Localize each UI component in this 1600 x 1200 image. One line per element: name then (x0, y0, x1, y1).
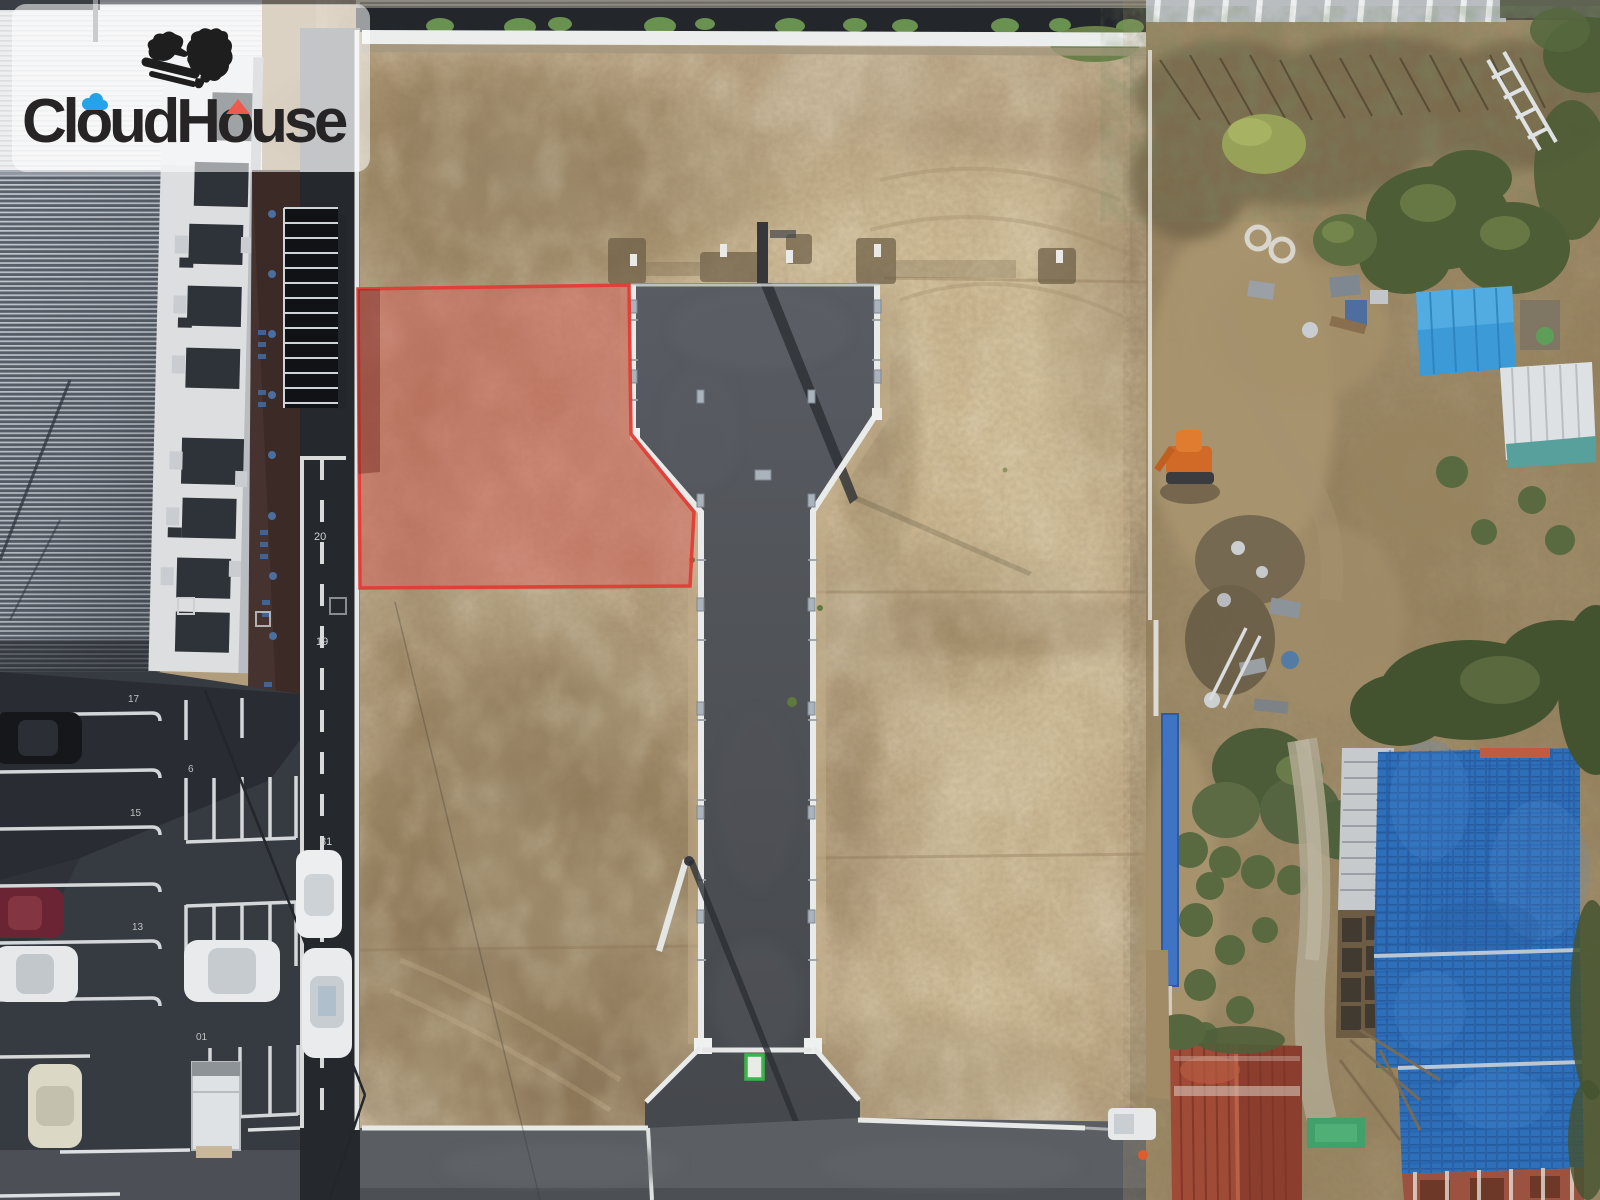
svg-text:01: 01 (196, 1032, 208, 1043)
svg-text:CloudHouse: CloudHouse (22, 87, 347, 156)
svg-text:81: 81 (320, 836, 332, 848)
svg-text:19: 19 (316, 636, 328, 648)
svg-text:17: 17 (128, 694, 140, 705)
svg-text:15: 15 (130, 808, 142, 819)
svg-text:13: 13 (132, 922, 144, 933)
svg-text:6: 6 (188, 764, 194, 775)
svg-text:20: 20 (314, 531, 326, 543)
